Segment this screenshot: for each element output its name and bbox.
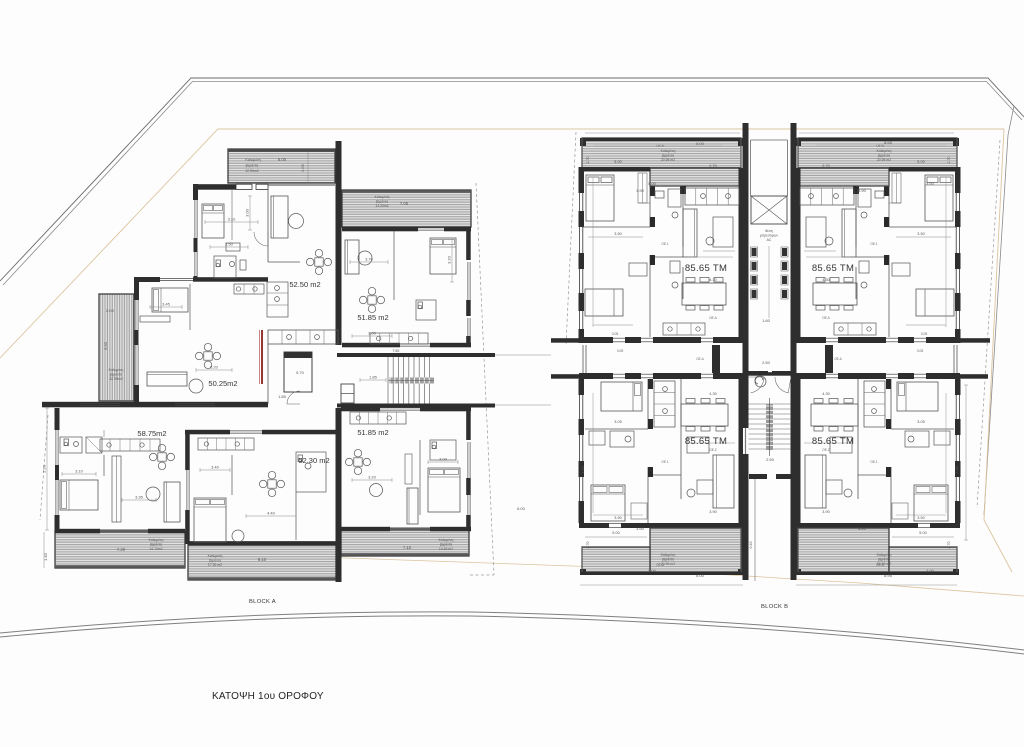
svg-text:3.90: 3.90 (709, 510, 716, 514)
svg-text:6.00: 6.00 (103, 341, 108, 350)
svg-text:5.00: 5.00 (614, 160, 621, 164)
svg-text:ΟΕ.Δ: ΟΕ.Δ (656, 563, 664, 567)
svg-text:Καλυμένη: Καλυμένη (245, 158, 260, 162)
svg-text:2.00: 2.00 (301, 164, 305, 171)
svg-text:2.20: 2.20 (42, 464, 47, 473)
svg-text:7.10: 7.10 (403, 545, 412, 550)
svg-text:85.65 TM: 85.65 TM (685, 436, 727, 447)
svg-text:1.60: 1.60 (762, 318, 771, 323)
svg-text:βεράντα: βεράντα (150, 543, 162, 547)
svg-text:2.50: 2.50 (766, 457, 775, 462)
svg-text:3.10: 3.10 (75, 469, 84, 474)
svg-text:ΟΕ.1: ΟΕ.1 (661, 242, 668, 246)
svg-text:5.00: 5.00 (612, 531, 619, 535)
svg-text:14.70m2: 14.70m2 (149, 547, 162, 551)
svg-text:ΟΕ.Δ: ΟΕ.Δ (834, 357, 842, 361)
svg-text:1.40: 1.40 (954, 465, 959, 474)
svg-text:3.05: 3.05 (921, 332, 928, 336)
svg-text:ΟΕ.Α: ΟΕ.Α (822, 316, 830, 320)
svg-text:17.30 m2: 17.30 m2 (208, 563, 222, 567)
svg-text:βεράντα: βεράντα (376, 200, 388, 204)
svg-text:BLOCK B: BLOCK B (761, 604, 788, 610)
svg-text:6.00: 6.00 (517, 506, 526, 511)
svg-text:6.00: 6.00 (696, 141, 705, 146)
svg-text:85.65 TM: 85.65 TM (685, 263, 727, 274)
svg-text:ΟΕ.Β: ΟΕ.Β (876, 144, 884, 148)
svg-text:2.70: 2.70 (586, 542, 590, 549)
svg-text:4.30: 4.30 (822, 278, 829, 282)
svg-text:ΟΕ.Β: ΟΕ.Β (656, 144, 664, 148)
svg-text:2.70: 2.70 (947, 157, 951, 164)
svg-text:2.70: 2.70 (709, 164, 716, 168)
svg-text:5.00: 5.00 (917, 160, 924, 164)
svg-text:3.00: 3.00 (439, 457, 448, 462)
svg-text:4.40: 4.40 (267, 511, 276, 516)
svg-text:3.90: 3.90 (636, 526, 645, 531)
svg-text:3.45: 3.45 (162, 302, 171, 307)
svg-text:3.05: 3.05 (917, 349, 924, 353)
svg-text:3.10: 3.10 (228, 217, 237, 222)
svg-text:βεράντα: βεράντα (662, 154, 674, 158)
svg-text:2.00: 2.00 (106, 308, 115, 313)
svg-text:3.05: 3.05 (614, 420, 621, 424)
svg-text:4.30: 4.30 (709, 392, 716, 396)
svg-text:Καλυμένη: Καλυμένη (661, 149, 676, 153)
svg-text:5.00: 5.00 (648, 181, 657, 186)
svg-text:20.95 m2: 20.95 m2 (661, 158, 675, 162)
svg-text:5.00: 5.00 (648, 568, 657, 573)
svg-text:BLOCK A: BLOCK A (249, 599, 276, 605)
svg-text:Καλυμένη: Καλυμένη (877, 149, 892, 153)
svg-text:βεράντα: βεράντα (110, 373, 122, 377)
svg-text:3.50: 3.50 (614, 232, 621, 236)
svg-text:12.50m2: 12.50m2 (245, 169, 259, 173)
svg-text:Καλυμένη: Καλυμένη (375, 195, 390, 199)
svg-text:T.85: T.85 (393, 349, 400, 353)
svg-text:3.05: 3.05 (612, 332, 619, 336)
svg-text:3.50: 3.50 (926, 181, 935, 186)
svg-text:2.70: 2.70 (586, 157, 590, 164)
svg-text:1.85: 1.85 (369, 375, 378, 380)
svg-text:3.50: 3.50 (614, 516, 621, 520)
svg-text:3.05: 3.05 (917, 420, 924, 424)
svg-text:7.20: 7.20 (117, 547, 126, 552)
svg-text:50.25m2: 50.25m2 (208, 379, 237, 388)
svg-text:3.00: 3.00 (368, 331, 377, 336)
svg-text:52.30 m2: 52.30 m2 (298, 456, 329, 465)
svg-text:3.20: 3.20 (447, 255, 452, 264)
svg-text:Καλυμένη: Καλυμένη (149, 538, 164, 542)
svg-text:12.98m2: 12.98m2 (109, 377, 122, 381)
svg-text:Καλυμένη: Καλυμένη (439, 538, 454, 542)
svg-text:7.05: 7.05 (400, 201, 409, 206)
svg-text:6.00: 6.00 (278, 157, 287, 162)
svg-text:3.40: 3.40 (211, 465, 220, 470)
svg-text:5.70: 5.70 (296, 370, 305, 375)
svg-text:2.50: 2.50 (762, 360, 771, 365)
svg-text:ΟΕ.1: ΟΕ.1 (870, 242, 877, 246)
svg-text:3.90: 3.90 (858, 188, 867, 193)
svg-text:4.30: 4.30 (709, 278, 716, 282)
svg-text:Καλυμένη: Καλυμένη (109, 368, 124, 372)
svg-text:8.10: 8.10 (258, 557, 267, 562)
svg-text:3.00: 3.00 (245, 208, 250, 217)
svg-text:ΟΕ.Δ: ΟΕ.Δ (696, 357, 704, 361)
svg-text:ΟΕ.Δ: ΟΕ.Δ (876, 563, 884, 567)
svg-text:3.35: 3.35 (135, 495, 144, 500)
svg-text:ΟΕ.1: ΟΕ.1 (870, 460, 877, 464)
svg-text:2.50: 2.50 (225, 242, 234, 247)
svg-text:μπρεσόρων: μπρεσόρων (760, 234, 778, 238)
svg-text:βεράντα: βεράντα (440, 543, 452, 547)
svg-text:1.40: 1.40 (580, 465, 585, 474)
svg-text:14.20m2: 14.20m2 (375, 204, 388, 208)
svg-text:3.90: 3.90 (822, 510, 829, 514)
svg-text:3.20: 3.20 (368, 475, 377, 480)
svg-text:8.95: 8.95 (884, 140, 893, 145)
svg-text:AC: AC (767, 238, 772, 242)
svg-text:3.50: 3.50 (926, 568, 935, 573)
svg-text:3.50: 3.50 (917, 232, 924, 236)
svg-text:5.00: 5.00 (919, 531, 926, 535)
svg-text:85.65 TM: 85.65 TM (812, 263, 854, 274)
svg-text:3.50: 3.50 (917, 516, 924, 520)
svg-text:βεράντα: βεράντα (246, 164, 259, 168)
svg-text:2.70: 2.70 (947, 542, 951, 549)
svg-text:52.50 m2: 52.50 m2 (289, 280, 320, 289)
svg-text:6.00: 6.00 (696, 573, 705, 578)
svg-text:14.45 m2: 14.45 m2 (439, 547, 453, 551)
svg-text:3.90: 3.90 (636, 188, 645, 193)
svg-text:51.85 m2: 51.85 m2 (357, 428, 388, 437)
svg-text:βεράντα: βεράντα (209, 559, 221, 563)
svg-text:θέση: θέση (765, 229, 772, 233)
svg-text:4.30: 4.30 (822, 392, 829, 396)
svg-text:ΟΕ.Ζ: ΟΕ.Ζ (822, 448, 829, 452)
svg-text:3.05: 3.05 (617, 349, 624, 353)
svg-text:Καλυμένη: Καλυμένη (661, 553, 676, 557)
svg-text:βεράντα: βεράντα (878, 558, 890, 562)
svg-text:51.85 m2: 51.85 m2 (357, 313, 388, 322)
svg-text:58.75m2: 58.75m2 (137, 429, 166, 438)
svg-text:3.90: 3.90 (858, 526, 867, 531)
svg-text:8.95: 8.95 (884, 573, 893, 578)
svg-text:βεράντα: βεράντα (662, 558, 674, 562)
svg-text:20.95 m2: 20.95 m2 (877, 158, 891, 162)
svg-text:2.70: 2.70 (822, 164, 829, 168)
svg-text:6.20: 6.20 (210, 365, 219, 370)
svg-text:ΟΕ.Α: ΟΕ.Α (709, 316, 717, 320)
svg-text:ΟΕ.Ζ: ΟΕ.Ζ (709, 448, 716, 452)
svg-text:ΚΑΤΟΨΗ 1ου ΟΡΟΦΟΥ: ΚΑΤΟΨΗ 1ου ΟΡΟΦΟΥ (212, 691, 324, 702)
svg-text:85.65 TM: 85.65 TM (812, 436, 854, 447)
svg-text:Καλυμένη: Καλυμένη (208, 554, 223, 558)
svg-text:1.85: 1.85 (278, 394, 287, 399)
svg-text:βεράντα: βεράντα (878, 154, 890, 158)
svg-text:ΟΕ.1: ΟΕ.1 (661, 460, 668, 464)
svg-text:3.70: 3.70 (365, 257, 374, 262)
svg-text:0.40: 0.40 (749, 542, 753, 549)
svg-text:Καλυμένη: Καλυμένη (877, 553, 892, 557)
